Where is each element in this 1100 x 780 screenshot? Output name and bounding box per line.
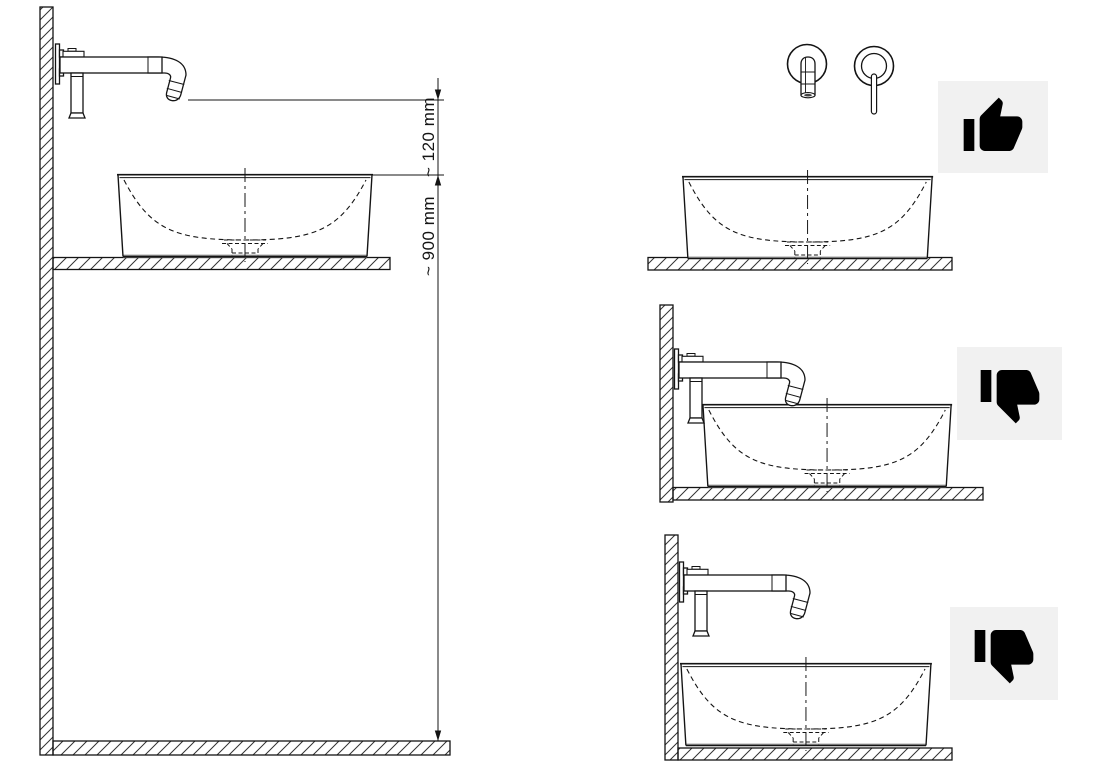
example-correct-diagram <box>648 45 952 271</box>
wall <box>660 305 673 502</box>
example-too-low-diagram <box>660 305 983 502</box>
line-art <box>0 0 1100 780</box>
countertop <box>53 258 390 270</box>
countertop <box>678 748 952 760</box>
main-section-diagram <box>40 7 450 755</box>
verdict-box-incorrect-2 <box>950 607 1058 700</box>
wall-mounted-faucet <box>680 562 851 663</box>
countertop-basin <box>682 170 933 264</box>
spout-trim-front-icon <box>788 45 827 98</box>
countertop-basin <box>680 657 932 751</box>
thumbs-down-icon <box>978 362 1042 426</box>
installation-guide-page: ~ 120 mm ~ 900 mm <box>0 0 1100 780</box>
floor <box>53 741 450 755</box>
countertop <box>673 488 983 501</box>
wall <box>40 7 53 755</box>
dimension-label-rim-to-floor: ~ 900 mm <box>419 196 439 276</box>
wall <box>665 535 678 760</box>
wall-mounted-faucet <box>56 44 227 145</box>
wall-mounted-faucet <box>675 349 846 450</box>
dimension-label-spout-to-rim: ~ 120 mm <box>419 97 439 177</box>
example-too-close-diagram <box>665 535 952 760</box>
thumbs-down-icon <box>972 622 1036 686</box>
verdict-box-correct <box>938 81 1048 173</box>
handle-trim-front-icon <box>855 47 894 115</box>
countertop-basin <box>702 398 952 492</box>
verdict-box-incorrect-1 <box>957 347 1062 440</box>
countertop-basin <box>117 168 373 262</box>
thumbs-up-icon <box>961 95 1025 159</box>
